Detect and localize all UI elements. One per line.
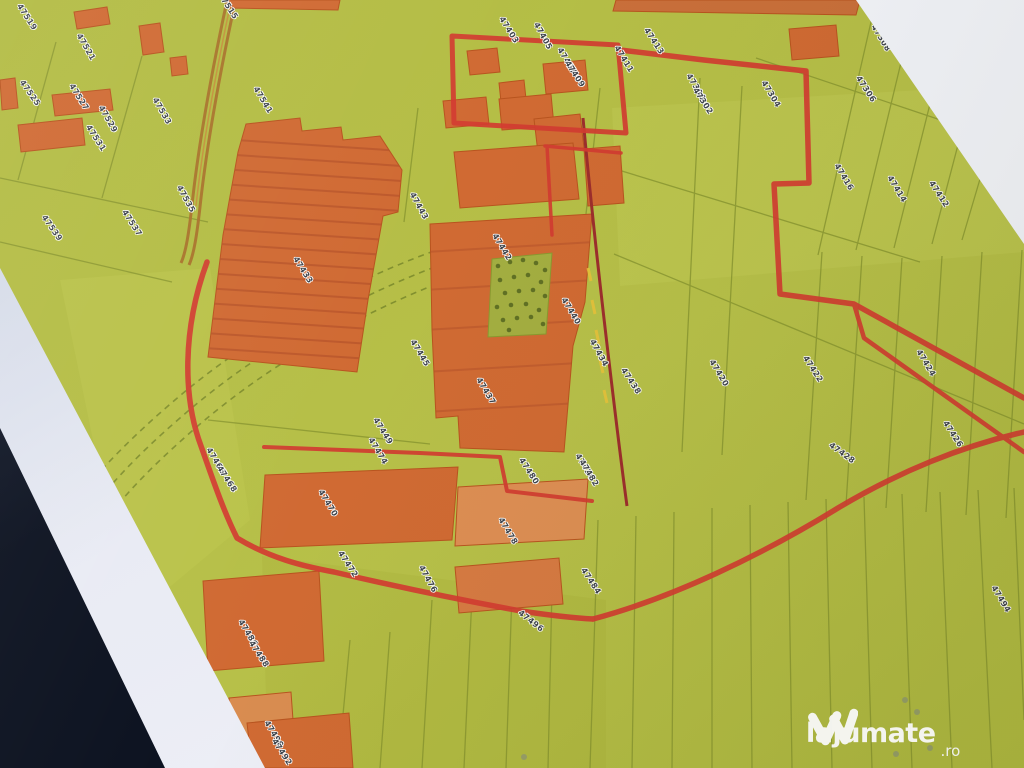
building-footprint <box>170 56 188 76</box>
building-footprint <box>455 558 563 613</box>
building-footprint <box>247 713 353 768</box>
cadastral-map-photo: 4751947521475154752547527475294753147533… <box>0 0 1024 768</box>
building-footprint <box>260 467 458 548</box>
building-footprint <box>203 571 324 671</box>
built-strip <box>228 0 340 10</box>
building-footprint <box>139 23 164 55</box>
lajumate-logo-icon <box>806 704 858 750</box>
building-footprint <box>543 60 588 94</box>
building-footprint <box>0 78 18 110</box>
building-footprint <box>467 48 500 75</box>
building-footprint <box>789 25 839 60</box>
watermark-tld-text: .ro <box>941 744 961 762</box>
vegetation-patch <box>488 253 552 337</box>
lajumate-watermark: lajumate .ro <box>806 704 1018 762</box>
building-footprint <box>455 479 588 546</box>
